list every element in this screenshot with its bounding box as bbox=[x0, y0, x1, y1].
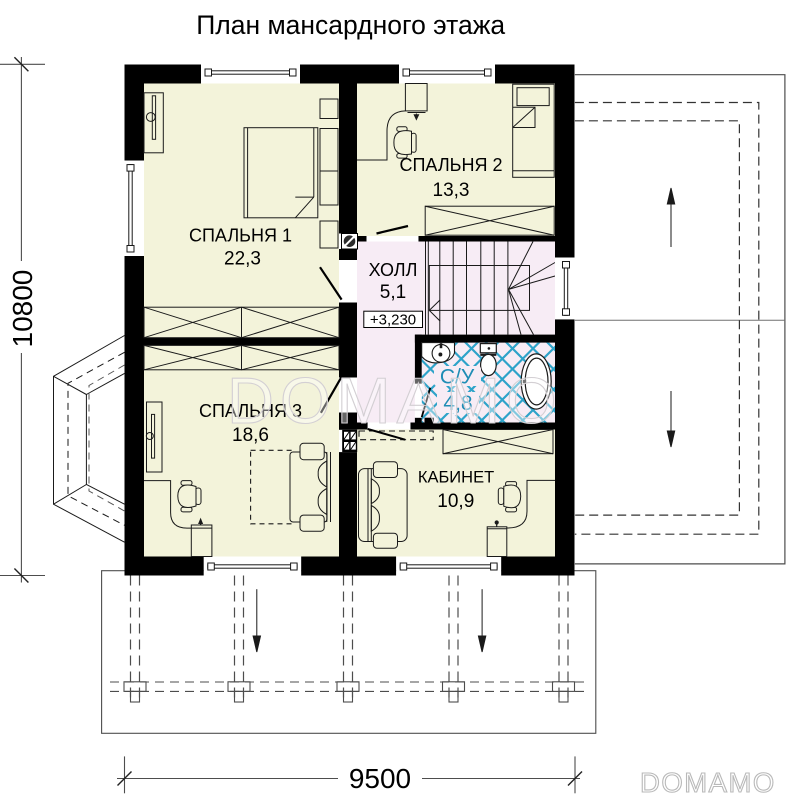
svg-text:СПАЛЬНЯ 2: СПАЛЬНЯ 2 bbox=[400, 155, 503, 175]
svg-text:10,9: 10,9 bbox=[437, 491, 474, 512]
svg-text:КАБИНЕТ: КАБИНЕТ bbox=[418, 469, 494, 487]
svg-text:СПАЛЬНЯ 1: СПАЛЬНЯ 1 bbox=[189, 226, 292, 246]
svg-text:DOMAMO: DOMAMO bbox=[227, 364, 563, 437]
svg-text:DOMAMO: DOMAMO bbox=[640, 767, 776, 798]
svg-text:ХОЛЛ: ХОЛЛ bbox=[369, 260, 418, 280]
svg-text:22,3: 22,3 bbox=[224, 249, 261, 270]
svg-text:13,3: 13,3 bbox=[433, 180, 470, 201]
svg-text:10800: 10800 bbox=[7, 270, 38, 348]
svg-text:5,1: 5,1 bbox=[380, 282, 406, 303]
svg-text:+3,230: +3,230 bbox=[370, 312, 416, 329]
svg-text:9500: 9500 bbox=[349, 763, 411, 794]
svg-text:План мансардного этажа: План мансардного этажа bbox=[196, 10, 505, 40]
